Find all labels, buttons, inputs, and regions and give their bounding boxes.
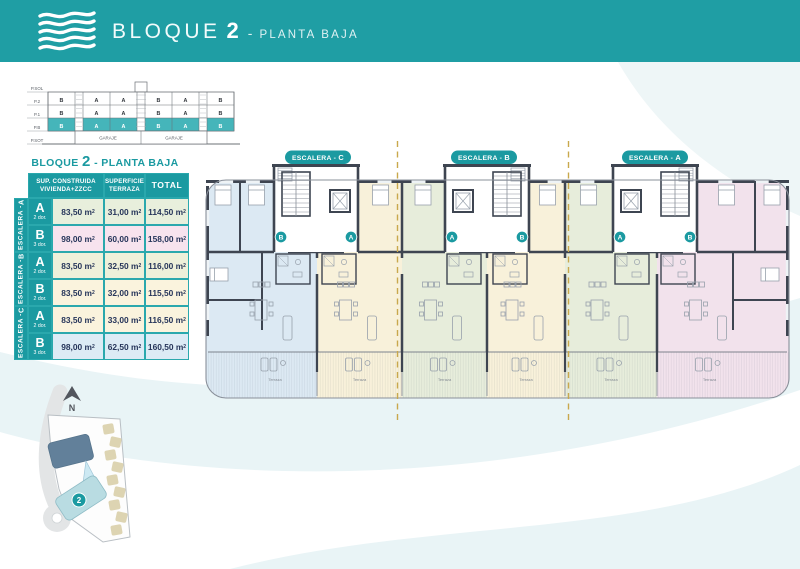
floor-label: P.SOT [31, 138, 44, 143]
header-bar: BLOQUE 2 - PLANTA BAJA [0, 0, 800, 62]
areas-table-title-post: - PLANTA BAJA [94, 157, 179, 169]
house-cluster [110, 524, 123, 536]
value-construida: 83,50 m2 [52, 252, 104, 279]
value-total: 115,50 m2 [145, 279, 189, 306]
house-cluster [104, 449, 117, 461]
areas-table-title-num: 2 [82, 153, 91, 170]
terrace-label: Terraza [268, 377, 282, 382]
unit-cell-b-a: A2 dor. [28, 252, 52, 279]
bed [415, 185, 431, 205]
bed-frame [540, 185, 556, 205]
terrace-label: Terraza [353, 377, 367, 382]
bed [373, 185, 389, 205]
escalera-group-label-a: ESCALERA - A [14, 198, 28, 252]
unit-letter-p1: B [157, 111, 161, 117]
value-terraza: 31,00 m2 [104, 198, 145, 225]
bed [210, 268, 228, 281]
escalera-group-label-b: ESCALERA - B [14, 252, 28, 306]
value-terraza: 62,50 m2 [104, 333, 145, 360]
table-corner-spacer [14, 173, 28, 198]
value-terraza: 60,00 m2 [104, 225, 145, 252]
bed-frame [415, 185, 431, 205]
brand-logo-icon [38, 11, 96, 51]
escalera-c-label: ESCALERA - C [285, 151, 351, 165]
unit-letter-p2: B [157, 98, 161, 104]
unit-letter-p2: B [219, 98, 223, 104]
value-total: 160,50 m2 [145, 333, 189, 360]
unit-letter-p1: B [60, 111, 64, 117]
unit-marker-letter: B [688, 234, 693, 241]
bed-frame [764, 185, 780, 205]
bed-frame [249, 185, 265, 205]
escalera-label-text: ESCALERA - B [458, 153, 510, 162]
escalera-label-text: ESCALERA - A [629, 153, 681, 162]
title-block-number: 2 [227, 18, 239, 44]
page-title: BLOQUE 2 - PLANTA BAJA [112, 18, 359, 44]
unit-marker-letter: A [618, 234, 623, 241]
unit-letter-pb: A [184, 124, 188, 130]
areas-table: BLOQUE 2 - PLANTA BAJA SUP. CONSTRUIDAVI… [14, 153, 196, 360]
floor-label: P.1 [34, 112, 41, 117]
value-construida: 83,50 m2 [52, 279, 104, 306]
garage-label: GARAJE [99, 136, 117, 141]
unit-letter-pb: A [122, 124, 126, 130]
unit-letter-pb: B [219, 124, 223, 130]
unit-marker-b: B [516, 231, 528, 243]
garage-label: GARAJE [165, 136, 183, 141]
bed-frame [581, 185, 597, 205]
value-terraza: 32,00 m2 [104, 279, 145, 306]
building-outline [48, 92, 234, 131]
areas-table-grid: SUP. CONSTRUIDAVIVIENDA+ZZCCSUPERFICIETE… [14, 173, 196, 360]
escalera-label-text: ESCALERA - C [292, 153, 344, 162]
unit-letter-p2: A [184, 98, 188, 104]
unit-cell-b-b: B2 dor. [28, 279, 52, 306]
terrace-hatch [206, 352, 789, 398]
unit-letter-p2: A [95, 98, 99, 104]
unit-marker-letter: B [520, 234, 525, 241]
value-construida: 98,00 m2 [52, 333, 104, 360]
unit-cell-c-b: B3 dor. [28, 333, 52, 360]
bed-frame [719, 185, 735, 205]
value-construida: 98,00 m2 [52, 225, 104, 252]
unit-marker-b: B [684, 231, 696, 243]
floor-label: P.2 [34, 99, 41, 104]
unit-marker-letter: B [279, 234, 284, 241]
unit-marker-letter: A [450, 234, 455, 241]
value-terraza: 33,00 m2 [104, 306, 145, 333]
terrace-label: Terraza [438, 377, 452, 382]
value-total: 116,50 m2 [145, 306, 189, 333]
value-total: 116,00 m2 [145, 252, 189, 279]
bed-frame [210, 268, 228, 281]
escalera-group-label-c: ESCALERA - C [14, 306, 28, 360]
header-sup-construida: SUP. CONSTRUIDAVIVIENDA+ZZCC [28, 173, 104, 198]
stair-tower [135, 82, 147, 92]
unit-cell-a-a: A2 dor. [28, 198, 52, 225]
bed [249, 185, 265, 205]
title-block-word: BLOQUE [112, 20, 221, 44]
bed-frame [215, 185, 231, 205]
value-construida: 83,50 m2 [52, 306, 104, 333]
areas-table-title-pre: BLOQUE [31, 157, 78, 169]
unit-letter-p2: A [122, 98, 126, 104]
floor-label: P.B [34, 125, 41, 130]
bed [761, 268, 779, 281]
unit-letter-p1: A [122, 111, 126, 117]
house-cluster [106, 474, 119, 486]
unit-letter-pb: B [157, 124, 161, 130]
floor-label: P.SOL [31, 86, 44, 91]
unit-letter-pb: B [60, 124, 64, 130]
bed-frame [373, 185, 389, 205]
unit-letter-p1: A [95, 111, 99, 117]
header-superficie-terraza: SUPERFICIETERRAZA [104, 173, 145, 198]
wave-band [230, 465, 800, 569]
house-cluster [108, 499, 121, 511]
block-2-marker-number: 2 [77, 496, 82, 505]
terrace-label: Terraza [703, 377, 717, 382]
unit-marker-letter: A [349, 234, 354, 241]
unit-letter-p1: A [184, 111, 188, 117]
bed [764, 185, 780, 205]
value-total: 114,50 m2 [145, 198, 189, 225]
header-total: TOTAL [145, 173, 189, 198]
bed-frame [761, 268, 779, 281]
title-floor-name: PLANTA BAJA [259, 29, 358, 41]
bed [540, 185, 556, 205]
floor-plan: BAABABTerrazaTerrazaTerrazaTerrazaTerraz… [200, 135, 800, 435]
block-2-marker: 2 [72, 493, 86, 507]
house-cluster [102, 423, 115, 435]
unit-cell-c-a: A2 dor. [28, 306, 52, 333]
escalera-b-label: ESCALERA - B [451, 151, 517, 165]
unit-marker-a: A [446, 231, 458, 243]
unit-cell-a-b: B3 dor. [28, 225, 52, 252]
unit-marker-b: B [275, 231, 287, 243]
value-terraza: 32,50 m2 [104, 252, 145, 279]
terrace-label: Terraza [519, 377, 533, 382]
north-label: N [69, 403, 76, 413]
unit-marker-a: A [614, 231, 626, 243]
bed [215, 185, 231, 205]
unit-letter-pb: A [95, 124, 99, 130]
bed [581, 185, 597, 205]
bed [719, 185, 735, 205]
value-construida: 83,50 m2 [52, 198, 104, 225]
unit-marker-a: A [345, 231, 357, 243]
value-total: 158,00 m2 [145, 225, 189, 252]
terrace-label: Terraza [604, 377, 618, 382]
site-map: 2N [10, 380, 190, 569]
unit-letter-p1: B [219, 111, 223, 117]
title-separator: - [248, 25, 253, 41]
escalera-a-label: ESCALERA - A [622, 151, 688, 165]
roundabout-center [52, 513, 62, 523]
unit-letter-p2: B [60, 98, 64, 104]
areas-table-title: BLOQUE 2 - PLANTA BAJA [14, 153, 196, 170]
